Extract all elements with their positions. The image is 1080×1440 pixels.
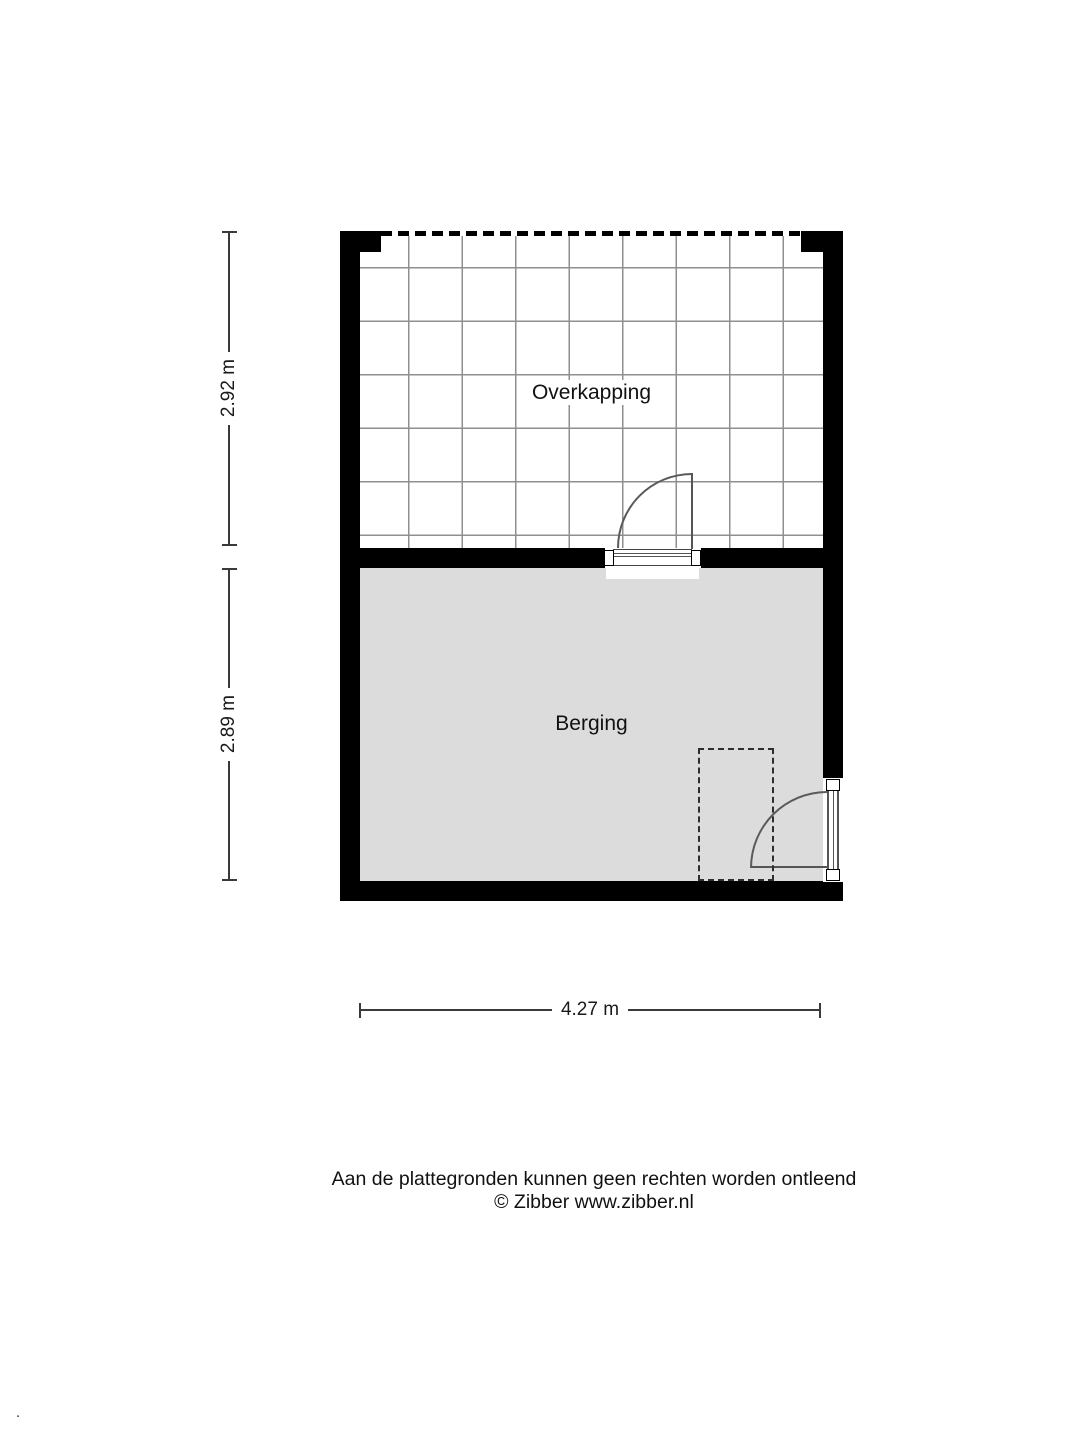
- dimension-line: [628, 1009, 819, 1011]
- dimension-bottom: 4.27 m: [359, 1001, 821, 1019]
- floorplan-canvas: Overkapping Berging 2.92 m 2.89 m 4.27 m…: [0, 0, 1080, 1440]
- wall-middle-left: [340, 548, 605, 568]
- dimension-label-left-bottom: 2.89 m: [218, 688, 240, 760]
- wall-stub-top-left: [340, 231, 381, 252]
- door-middle-jamb-left: [604, 550, 614, 566]
- dimension-line: [361, 1009, 552, 1011]
- stray-period-mark: .: [16, 1404, 20, 1421]
- dimension-line: [228, 761, 230, 879]
- dimension-label-bottom: 4.27 m: [552, 999, 628, 1021]
- wall-middle-right: [701, 548, 843, 568]
- door-middle-jamb-right: [691, 550, 701, 566]
- dimension-line: [228, 425, 230, 544]
- open-side-dashed-line: [381, 231, 801, 236]
- door-right-panel: [827, 791, 839, 869]
- dimension-tick: [222, 544, 237, 546]
- dimension-line: [228, 233, 230, 352]
- door-right-jamb-bottom: [826, 869, 840, 881]
- dimension-left-bottom: 2.89 m: [214, 568, 244, 881]
- room-label-berging-text: Berging: [550, 711, 632, 736]
- door-right-jamb-top: [826, 779, 840, 791]
- dimension-label-left-top: 2.92 m: [218, 352, 240, 424]
- footer-copyright: © Zibber www.zibber.nl: [144, 1191, 1044, 1214]
- room-label-berging: Berging: [360, 711, 823, 737]
- dimension-left-top: 2.92 m: [214, 231, 244, 546]
- dimension-tick: [819, 1003, 821, 1018]
- room-label-overkapping: Overkapping: [360, 380, 823, 406]
- footer-disclaimer: Aan de plattegronden kunnen geen rechten…: [144, 1168, 1044, 1191]
- wall-right-upper: [823, 231, 843, 778]
- door-middle-apron: [606, 568, 699, 579]
- wall-stub-top-right: [801, 231, 843, 252]
- door-middle-threshold: [613, 549, 692, 566]
- footer: Aan de plattegronden kunnen geen rechten…: [144, 1168, 1044, 1214]
- room-label-overkapping-text: Overkapping: [527, 380, 656, 405]
- dimension-tick: [222, 879, 237, 881]
- dimension-line: [228, 570, 230, 688]
- dashed-feature-outline: [698, 748, 774, 881]
- wall-bottom: [340, 881, 843, 901]
